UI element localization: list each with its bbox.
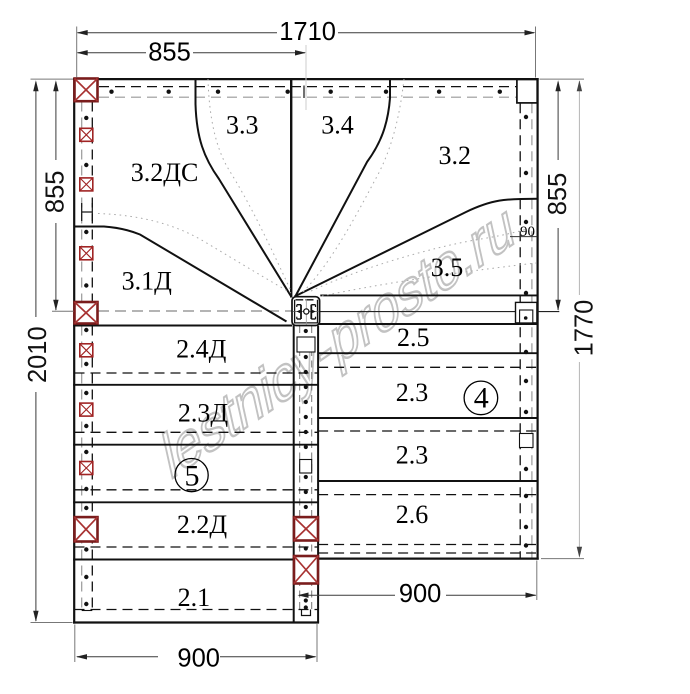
svg-text:855: 855 (42, 171, 70, 214)
svg-text:3.1Д: 3.1Д (122, 267, 173, 296)
svg-text:4: 4 (474, 382, 489, 415)
svg-text:5: 5 (185, 459, 200, 492)
svg-text:2.2Д: 2.2Д (177, 510, 228, 539)
svg-text:900: 900 (177, 644, 220, 672)
svg-text:900: 900 (399, 580, 442, 608)
svg-text:90: 90 (520, 224, 535, 240)
svg-text:2.5: 2.5 (397, 323, 430, 352)
svg-text:2.3: 2.3 (396, 440, 429, 469)
svg-text:2.4Д: 2.4Д (176, 335, 227, 364)
svg-text:3.5: 3.5 (431, 253, 464, 282)
svg-text:855: 855 (544, 173, 572, 216)
svg-text:2010: 2010 (24, 326, 52, 383)
svg-text:3.2ДС: 3.2ДС (131, 158, 199, 187)
svg-text:2.3Д: 2.3Д (178, 398, 229, 427)
svg-text:3.2: 3.2 (438, 141, 471, 170)
svg-text:855: 855 (148, 38, 191, 66)
svg-text:2.6: 2.6 (396, 500, 429, 529)
svg-text:1710: 1710 (279, 18, 336, 46)
svg-text:3.3: 3.3 (226, 110, 259, 139)
svg-text:1770: 1770 (571, 300, 599, 357)
svg-text:2.3: 2.3 (396, 378, 429, 407)
svg-text:2.1: 2.1 (178, 583, 211, 612)
svg-text:3.4: 3.4 (321, 110, 354, 139)
